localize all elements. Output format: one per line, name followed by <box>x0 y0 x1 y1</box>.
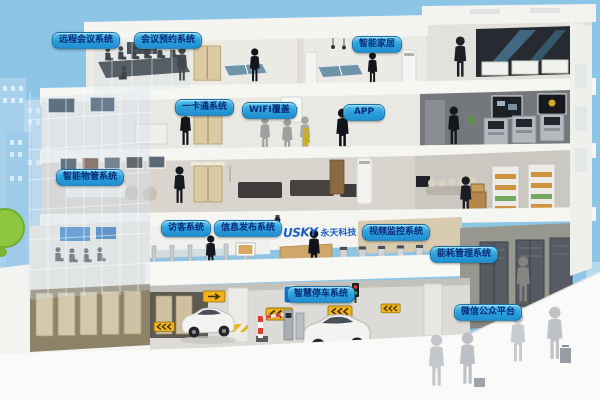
label-visitor-system: 访客系统 <box>161 220 211 237</box>
label-app: APP <box>343 104 385 121</box>
arrow-sign-icon <box>154 322 174 331</box>
label-one-card-system: 一卡通系统 <box>175 99 234 116</box>
elevator-doors <box>191 162 225 202</box>
label-video-surveillance-system: 视频监控系统 <box>362 224 430 241</box>
label-info-publishing-system: 信息发布系统 <box>214 220 282 237</box>
label-wifi-coverage: WIFI覆盖 <box>242 102 297 119</box>
kiosk-machine <box>484 118 508 145</box>
label-meeting-reservation-system: 会议预约系统 <box>134 32 202 49</box>
plant <box>468 116 476 124</box>
vending-shelf <box>528 164 555 210</box>
label-energy-management-system: 能耗管理系统 <box>430 246 498 263</box>
usky-logo: USKY 永天科技 <box>283 224 357 240</box>
briefcase <box>474 378 485 387</box>
usky-logo-brand: USKY <box>283 225 318 240</box>
suitcase <box>560 348 571 363</box>
label-smart-parking-system: 智慧停车系统 <box>287 286 355 303</box>
label-smart-home: 智能家居 <box>352 36 402 53</box>
penthouse-smart-home-floor <box>422 4 596 86</box>
kiosk-machine <box>540 114 564 141</box>
arrow-sign-right <box>203 291 225 302</box>
label-property-management-system: 智能物管系统 <box>56 169 124 186</box>
building-scene <box>0 0 600 400</box>
label-wechat-public-platform: 微信公众平台 <box>454 304 522 321</box>
vending-shelf <box>492 166 519 212</box>
usky-logo-company: 永天科技 <box>320 225 356 239</box>
label-remote-conference-system: 远程会议系统 <box>52 32 120 49</box>
right-wall <box>570 22 592 276</box>
smart-building-cutaway-illustration: 远程会议系统 会议预约系统 智能家居 一卡通系统 WIFI覆盖 APP 智能物管… <box>0 0 600 400</box>
kiosk-machine <box>512 116 536 143</box>
arrow-sign-icon <box>381 304 400 313</box>
